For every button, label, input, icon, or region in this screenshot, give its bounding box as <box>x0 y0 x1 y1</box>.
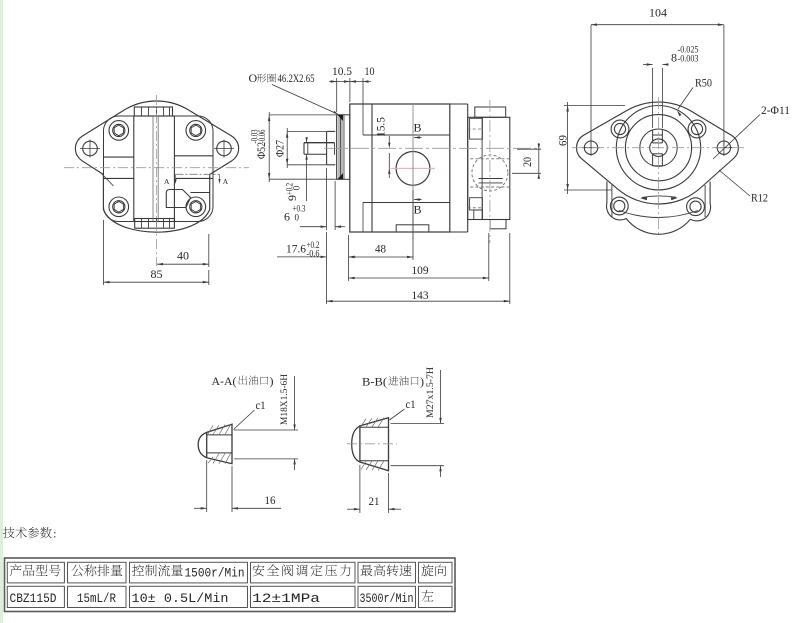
svg-text:10: 10 <box>365 64 375 78</box>
svg-text:CBZ115D: CBZ115D <box>10 591 57 606</box>
svg-text:M18X1.5-6H: M18X1.5-6H <box>279 373 289 425</box>
svg-text:c1: c1 <box>256 398 266 412</box>
svg-text:A: A <box>164 177 170 186</box>
svg-text:R12: R12 <box>751 191 768 205</box>
svg-text:109: 109 <box>412 263 429 277</box>
svg-text:-0.6: -0.6 <box>307 249 320 259</box>
svg-text:46.2X2.65: 46.2X2.65 <box>278 71 315 85</box>
svg-text:12±1MPa: 12±1MPa <box>252 591 320 606</box>
svg-text:A-A(: A-A( <box>212 374 237 388</box>
svg-text:-0.003: -0.003 <box>678 54 699 64</box>
svg-text:M27x1.5-7H: M27x1.5-7H <box>425 366 435 418</box>
svg-text:8: 8 <box>671 51 677 65</box>
svg-text:0: 0 <box>292 185 302 190</box>
svg-text:R50: R50 <box>695 76 712 90</box>
svg-text:B: B <box>413 203 421 217</box>
svg-text:c1: c1 <box>406 397 416 411</box>
svg-text:21: 21 <box>369 494 380 508</box>
svg-text:20: 20 <box>520 157 534 167</box>
svg-text:16: 16 <box>265 493 276 507</box>
svg-text:3500r/Min: 3500r/Min <box>360 591 414 606</box>
svg-text::: : <box>53 527 56 541</box>
svg-text:-0.06: -0.06 <box>257 129 267 143</box>
svg-text:48: 48 <box>375 242 386 256</box>
svg-text:10.5: 10.5 <box>332 64 352 78</box>
svg-text:15.5: 15.5 <box>374 117 388 137</box>
svg-text:0: 0 <box>295 213 300 223</box>
svg-text:Φ27: Φ27 <box>273 140 287 157</box>
svg-text:O: O <box>249 71 258 85</box>
svg-text:A: A <box>223 177 229 186</box>
svg-text:143: 143 <box>412 288 429 302</box>
svg-text:2-Φ11: 2-Φ11 <box>761 103 790 117</box>
svg-text:40: 40 <box>177 249 189 263</box>
svg-text:1500r/Min: 1500r/Min <box>185 566 245 581</box>
svg-text:6: 6 <box>284 210 290 224</box>
svg-text:B: B <box>413 121 421 135</box>
svg-text:17.6: 17.6 <box>286 242 306 256</box>
svg-text:85: 85 <box>151 267 163 281</box>
svg-text:15mL/R: 15mL/R <box>77 591 116 606</box>
svg-text:): ) <box>270 374 274 388</box>
svg-text:10± 0.5L/Min: 10± 0.5L/Min <box>132 591 229 606</box>
svg-text:B-B(: B-B( <box>362 375 387 389</box>
svg-text:): ) <box>420 375 424 389</box>
svg-text:Φ52: Φ52 <box>254 142 268 159</box>
svg-text:69: 69 <box>556 135 570 146</box>
svg-text:104: 104 <box>649 5 667 19</box>
